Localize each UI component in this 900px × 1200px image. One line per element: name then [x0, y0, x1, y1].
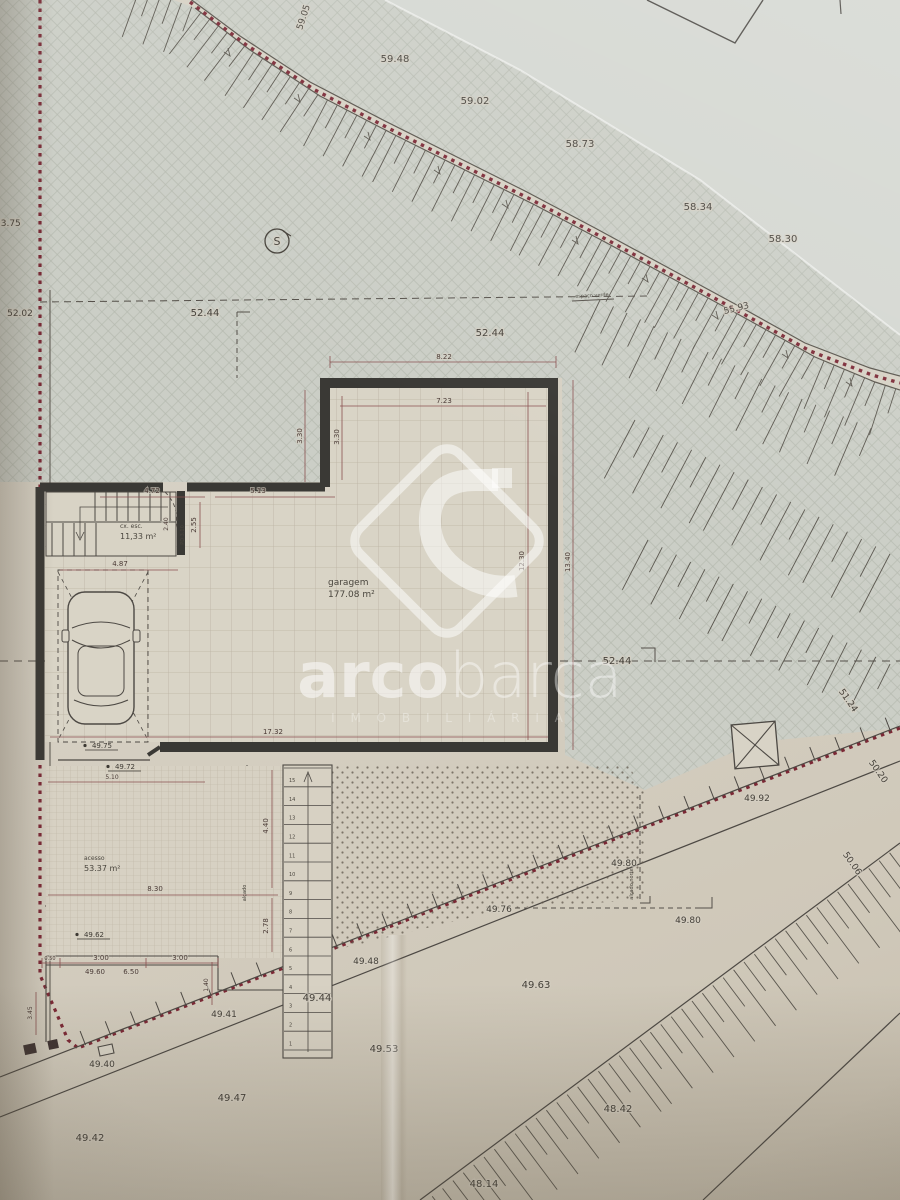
plan-label: 50.20 — [866, 758, 889, 785]
stair-number: 4 — [289, 985, 292, 991]
plan-label: 49.63 — [522, 980, 551, 991]
plan-label: 49.53 — [370, 1044, 399, 1055]
plan-label: 11,33 m² — [120, 532, 156, 541]
plan-label: 5.10 — [105, 774, 119, 781]
stair-number: 13 — [289, 816, 295, 822]
plan-label: 48.14 — [470, 1179, 499, 1190]
plan-label: 8.22 — [436, 353, 452, 361]
plan-label: 58.73 — [566, 139, 595, 150]
stairwell — [46, 492, 176, 556]
watermark-brand-light: barca — [449, 639, 623, 712]
plan-label: 8.30 — [147, 885, 163, 893]
stair-number: 1 — [289, 1041, 292, 1047]
plan-label: 59.02 — [461, 96, 490, 107]
stair-number: 15 — [289, 778, 295, 784]
plan-label: 3.30 — [333, 429, 341, 445]
site-plan-drawing: 59.4859.0258.7358.3458.3055.9359.0553.75… — [0, 0, 900, 1200]
plan-label: 7.23 — [436, 397, 452, 405]
plan-label: 49.47 — [218, 1093, 247, 1104]
stair-number: 5 — [289, 966, 292, 972]
plan-label: 0.50 — [44, 956, 55, 962]
plan-label: 6.50 — [123, 968, 139, 976]
stair-number: 14 — [289, 797, 295, 803]
plan-label: 1.40 — [203, 978, 210, 992]
stair-number: 2 — [289, 1023, 292, 1029]
plan-label: 49.44 — [303, 993, 332, 1004]
watermark-tagline: I M O B I L I Á R I A — [331, 710, 569, 725]
plan-label: garagem — [328, 578, 368, 588]
plan-label: PD 3.10 — [180, 525, 186, 545]
plan-label: 50.06 — [840, 850, 863, 877]
plan-label: 4.40 — [262, 818, 270, 834]
plan-label: alçado — [242, 885, 248, 902]
plan-label: 5.13 — [250, 487, 266, 495]
plan-label: 49.72 — [115, 763, 135, 771]
plan-label: 49.62 — [84, 931, 104, 939]
plan-label: 48.42 — [604, 1104, 633, 1115]
plan-label: 2.40 — [163, 517, 170, 531]
stair-number: 12 — [289, 835, 295, 841]
plan-label: 49.76 — [486, 905, 512, 915]
plan-label: cx. esc. — [120, 523, 143, 530]
stair-number: 8 — [289, 910, 292, 916]
plan-label: 3.00 — [93, 954, 109, 962]
plan-label: 3.00 — [172, 954, 188, 962]
gravel-stipple-area — [332, 765, 645, 950]
plan-label: 13.40 — [564, 552, 572, 572]
stair-number: 6 — [289, 947, 292, 953]
plan-label: 2.55 — [190, 517, 198, 533]
plan-label: 59.48 — [381, 54, 410, 65]
plan-label: S — [274, 235, 281, 248]
plan-label: alçado norte — [629, 868, 635, 899]
plan-label: 52.44 — [191, 308, 220, 319]
plan-label: 52.02 — [7, 309, 33, 319]
plan-label: 3.30 — [296, 428, 304, 444]
plan-label: 177.08 m² — [328, 590, 375, 600]
stair-number: 11 — [289, 853, 295, 859]
stair-number: 7 — [289, 929, 292, 935]
plan-label: 4.87 — [112, 560, 128, 568]
plan-label: 17.32 — [263, 728, 283, 736]
patio-acesso — [46, 766, 286, 1042]
plan-label: 49.42 — [76, 1133, 105, 1144]
plan-label: 49.75 — [92, 742, 112, 750]
plan-label: 53.37 m² — [84, 864, 120, 873]
plan-label: 49.80 — [611, 859, 637, 869]
plan-label: 49.60 — [85, 968, 105, 976]
plan-label: 52.44 — [476, 328, 505, 339]
stair-number: 9 — [289, 891, 292, 897]
stair-number: 10 — [289, 872, 295, 878]
plan-label: acesso — [84, 855, 105, 862]
plan-label: 49.41 — [211, 1010, 237, 1020]
plan-label: 49.92 — [744, 794, 770, 804]
boundary-square-marker — [731, 721, 779, 769]
watermark-brand-bold: arco — [297, 639, 449, 712]
site-plan-photo: 59.4859.0258.7358.3458.3055.9359.0553.75… — [0, 0, 900, 1200]
plan-label: 4.72 — [144, 487, 160, 495]
plan-label: 58.34 — [684, 202, 713, 213]
plan-label: 2.78 — [262, 918, 270, 934]
plan-label: 3.45 — [27, 1006, 34, 1020]
plan-label: 49.80 — [675, 916, 701, 926]
plan-label: 49.48 — [353, 957, 379, 967]
plan-label: 49.40 — [89, 1060, 115, 1070]
stair-number: 3 — [289, 1004, 292, 1010]
plan-label: 53.75 — [0, 219, 21, 229]
plan-label: 58.30 — [769, 234, 798, 245]
